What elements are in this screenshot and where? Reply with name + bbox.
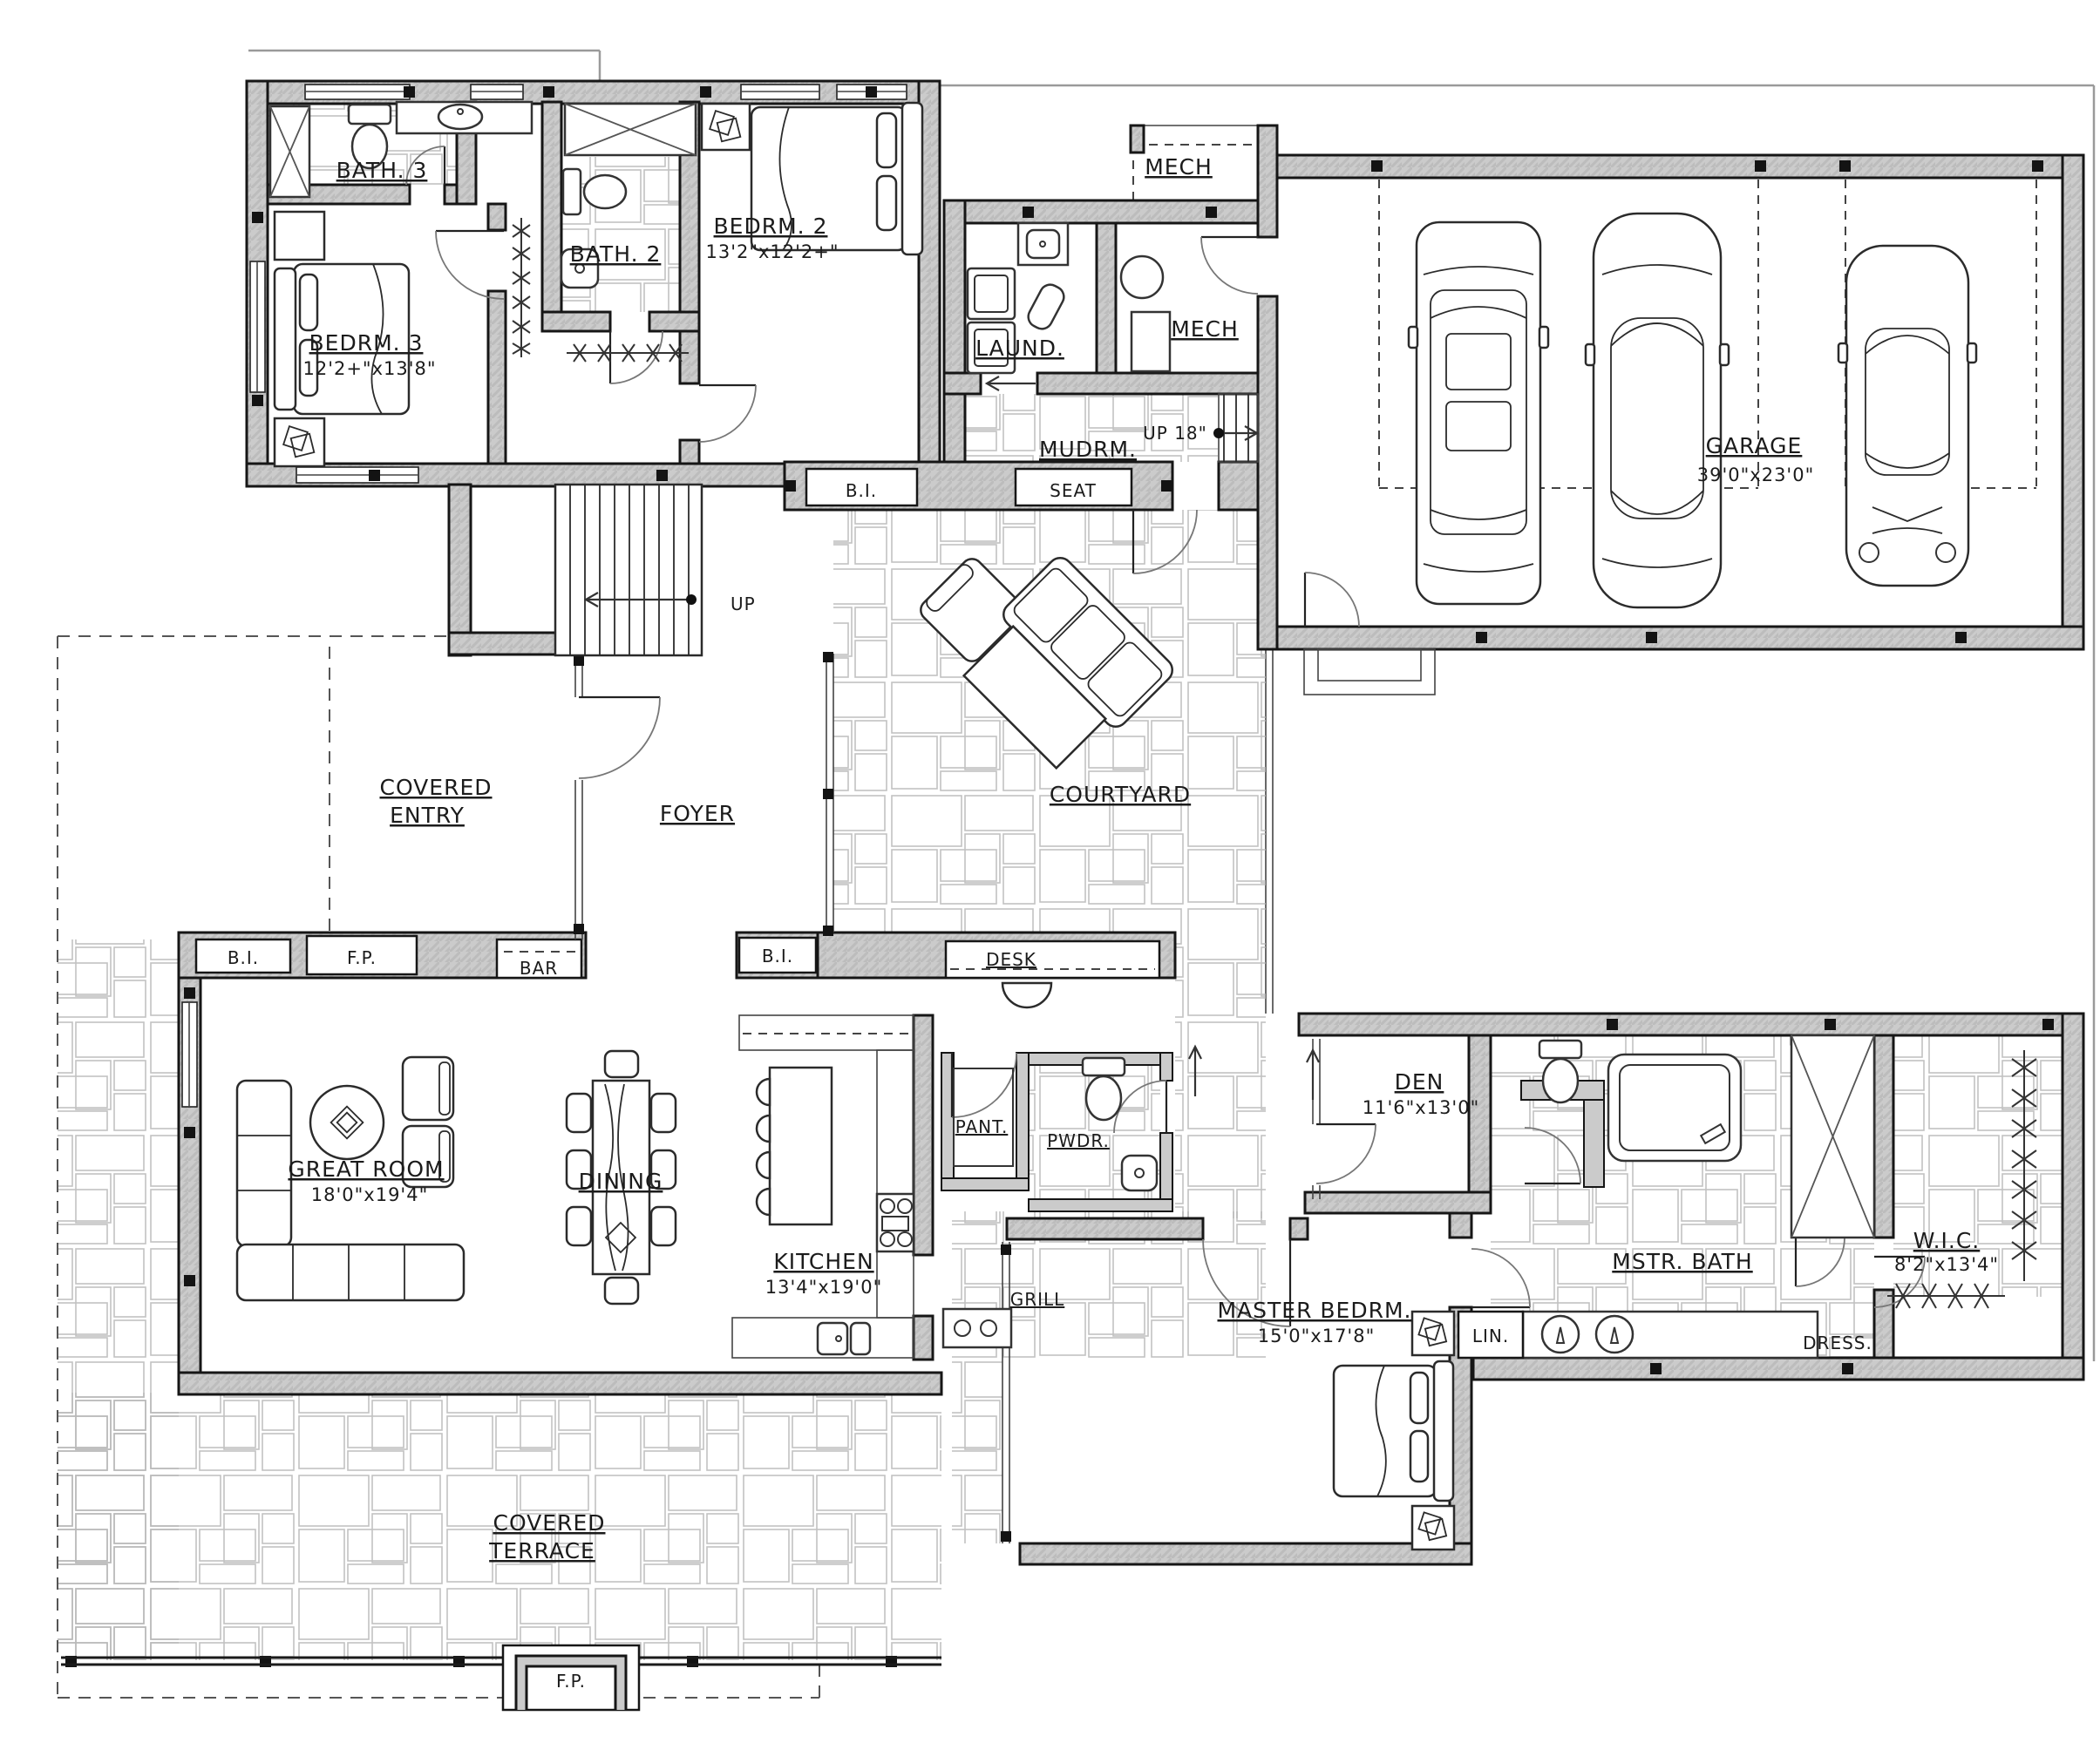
label-dining: DINING bbox=[579, 1169, 663, 1194]
label-den: DEN bbox=[1395, 1069, 1444, 1095]
label-fireplace: F.P. bbox=[347, 947, 377, 968]
label-bedrm3: BEDRM. 3 bbox=[309, 330, 424, 356]
shower-bath3 bbox=[270, 106, 309, 197]
car-sports bbox=[1838, 246, 1976, 586]
label-bi-great-room: B.I. bbox=[228, 947, 259, 968]
toilet-master bbox=[1539, 1041, 1581, 1102]
label-foyer: FOYER bbox=[660, 801, 735, 826]
dims-bedrm3: 12'2+"x13'8" bbox=[302, 358, 436, 379]
dims-kitchen: 13'4"x19'0" bbox=[765, 1277, 882, 1298]
dims-garage: 39'0"x23'0" bbox=[1697, 465, 1814, 485]
car-sedan bbox=[1586, 214, 1729, 607]
label-mech-upper: MECH bbox=[1145, 154, 1213, 180]
label-desk: DESK bbox=[986, 949, 1036, 970]
dims-den: 11'6"x13'0" bbox=[1363, 1097, 1479, 1118]
label-bi-kitchen: B.I. bbox=[762, 946, 793, 966]
outdoor-grill bbox=[943, 1309, 1011, 1347]
label-pantry: PANT. bbox=[955, 1116, 1009, 1137]
label-covered-entry-1: COVERED bbox=[379, 775, 492, 800]
label-mudroom: MUDRM. bbox=[1039, 437, 1137, 462]
garage-steps bbox=[1213, 394, 1258, 462]
floor-plan: BATH. 3 BEDRM. 3 12'2+"x13'8" BATH. 2 BE… bbox=[0, 0, 2100, 1743]
den-window-wall bbox=[1313, 1039, 1320, 1199]
label-dress: DRESS. bbox=[1803, 1333, 1872, 1353]
label-mech: MECH bbox=[1171, 316, 1239, 342]
floor-plan-drawing: BATH. 3 BEDRM. 3 12'2+"x13'8" BATH. 2 BE… bbox=[0, 0, 2100, 1743]
area-rug bbox=[310, 1086, 384, 1159]
dims-bedrm2: 13'2"x12'2+" bbox=[705, 241, 839, 262]
label-linen: LIN. bbox=[1472, 1326, 1509, 1346]
cars bbox=[1409, 214, 1976, 607]
label-courtyard: COURTYARD bbox=[1050, 782, 1191, 807]
bathtub-master bbox=[1608, 1055, 1741, 1161]
armchair-1 bbox=[403, 1057, 453, 1120]
dims-great-room: 18'0"x19'4" bbox=[311, 1184, 428, 1205]
label-covered-terrace-1: COVERED bbox=[493, 1510, 605, 1536]
label-covered-entry-2: ENTRY bbox=[390, 803, 465, 828]
nightstand-master-2 bbox=[1412, 1506, 1454, 1550]
label-laundry: LAUND. bbox=[975, 336, 1064, 361]
sink-powder bbox=[1122, 1156, 1157, 1190]
front-door bbox=[579, 697, 660, 778]
garage-stoop bbox=[1304, 649, 1435, 695]
shower-master bbox=[1791, 1035, 1874, 1238]
laundry-sink bbox=[1018, 223, 1068, 265]
label-covered-terrace-2: TERRACE bbox=[488, 1538, 595, 1563]
car-suv bbox=[1409, 222, 1548, 604]
ironing-board bbox=[1024, 281, 1067, 332]
label-master-bedroom: MASTER BEDRM. bbox=[1217, 1298, 1411, 1323]
water-heater bbox=[1121, 256, 1170, 371]
kitchen-sink bbox=[818, 1323, 870, 1354]
plant-bedroom3 bbox=[275, 418, 324, 466]
range bbox=[877, 1194, 914, 1251]
label-seat: SEAT bbox=[1050, 480, 1097, 501]
label-great-room: GREAT ROOM bbox=[288, 1156, 444, 1182]
label-bath2: BATH. 2 bbox=[570, 241, 662, 267]
label-kitchen: KITCHEN bbox=[773, 1249, 873, 1274]
nightstand-master-1 bbox=[1412, 1312, 1454, 1355]
vanity-bath3 bbox=[397, 102, 532, 133]
kitchen-island bbox=[757, 1068, 832, 1224]
label-master-bath: MSTR. BATH bbox=[1612, 1249, 1752, 1274]
master-vanity bbox=[1523, 1312, 1818, 1358]
label-wic: W.I.C. bbox=[1913, 1228, 1981, 1253]
label-bath3: BATH. 3 bbox=[336, 158, 428, 183]
desk-nook bbox=[946, 941, 1159, 978]
label-bedrm2: BEDRM. 2 bbox=[714, 214, 828, 239]
dims-master-bedroom: 15'0"x17'8" bbox=[1258, 1326, 1375, 1346]
nightstand-bedroom3 bbox=[275, 212, 324, 260]
label-terrace-fireplace: F.P. bbox=[556, 1671, 586, 1692]
label-bi-mudroom: B.I. bbox=[846, 480, 877, 501]
desk-chair bbox=[1002, 983, 1051, 1007]
label-powder: PWDR. bbox=[1047, 1130, 1110, 1151]
shower-bath2 bbox=[565, 104, 696, 155]
plant-bedroom2 bbox=[702, 104, 750, 150]
label-up18: UP 18" bbox=[1143, 423, 1207, 444]
label-stairs-up: UP bbox=[731, 593, 756, 614]
garage-entry-door bbox=[1305, 573, 1359, 627]
dims-wic: 8'2"x13'4" bbox=[1894, 1254, 1999, 1275]
label-garage: GARAGE bbox=[1706, 433, 1803, 458]
bed-master bbox=[1334, 1361, 1453, 1501]
label-grill: GRILL bbox=[1010, 1289, 1065, 1310]
main-stairs bbox=[555, 485, 702, 655]
label-bar: BAR bbox=[520, 958, 558, 979]
toilet-powder bbox=[1083, 1058, 1125, 1120]
